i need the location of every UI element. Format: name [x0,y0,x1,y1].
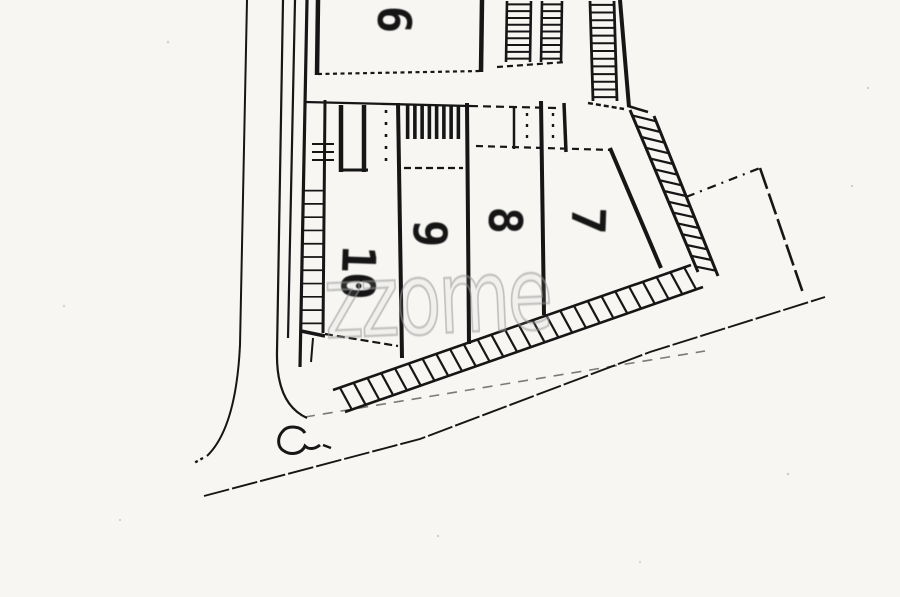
plot6-bottom-dotted [318,71,481,74]
footpath-ladder-rung [560,311,572,333]
footpath-ladder-rung [436,354,448,376]
footpath-ladder-rung [684,267,696,289]
strip-heavy-divider [564,103,566,152]
footpath-ladder-rung [657,277,669,299]
boundary-diagonal-top [620,0,629,107]
rear-boundary-dashed [476,146,612,150]
plot6-left-edge [317,0,318,75]
survey-marker-icon [279,427,320,453]
plot-label-6: 6 [371,5,418,33]
tick-ladder-cap [301,331,325,336]
plot-label-8: 8 [482,206,529,234]
footpath-ladder-rung [367,378,379,400]
footpath-ladder-rung [629,287,641,309]
parcel-right-edge [760,168,803,293]
footpath-ladder-rung [381,373,393,395]
plot6-right-edge [481,0,482,72]
footpath-ladder-rung [354,383,366,405]
footpath-ladder-rung [602,296,614,318]
watermark-text: zzome [322,244,552,354]
plot-label-7: 7 [565,206,612,234]
strip-left-hatch-dashes [312,144,334,160]
survey-marker-tail-dash [323,445,331,448]
kerb-inner-line-2 [288,0,295,338]
walkway-c-endcap [588,103,624,109]
footpath-ladder-rung [670,272,682,294]
footpath-ladder-rung [395,368,407,390]
kerb-outer-tail-dashes [194,458,203,463]
footpath-ladder-rung [340,388,352,410]
walkway-ab-endcap [497,62,566,67]
kerb-outer-line [207,0,247,456]
footpath-ladder-rung [423,359,435,381]
footpath-ladder-rung [643,282,655,304]
site-boundary-left [300,0,307,367]
plot10-step-line [311,338,313,362]
footpath-ladder-rung [588,301,600,323]
parcel-dashdot-boundary [686,168,760,197]
site-plan-scan: 6 10 9 8 7 zzome [0,0,900,597]
footpath-ladder-rung [409,364,421,386]
footpath-ladder-rung [574,306,586,328]
footpath-ladder-rung [615,291,627,313]
